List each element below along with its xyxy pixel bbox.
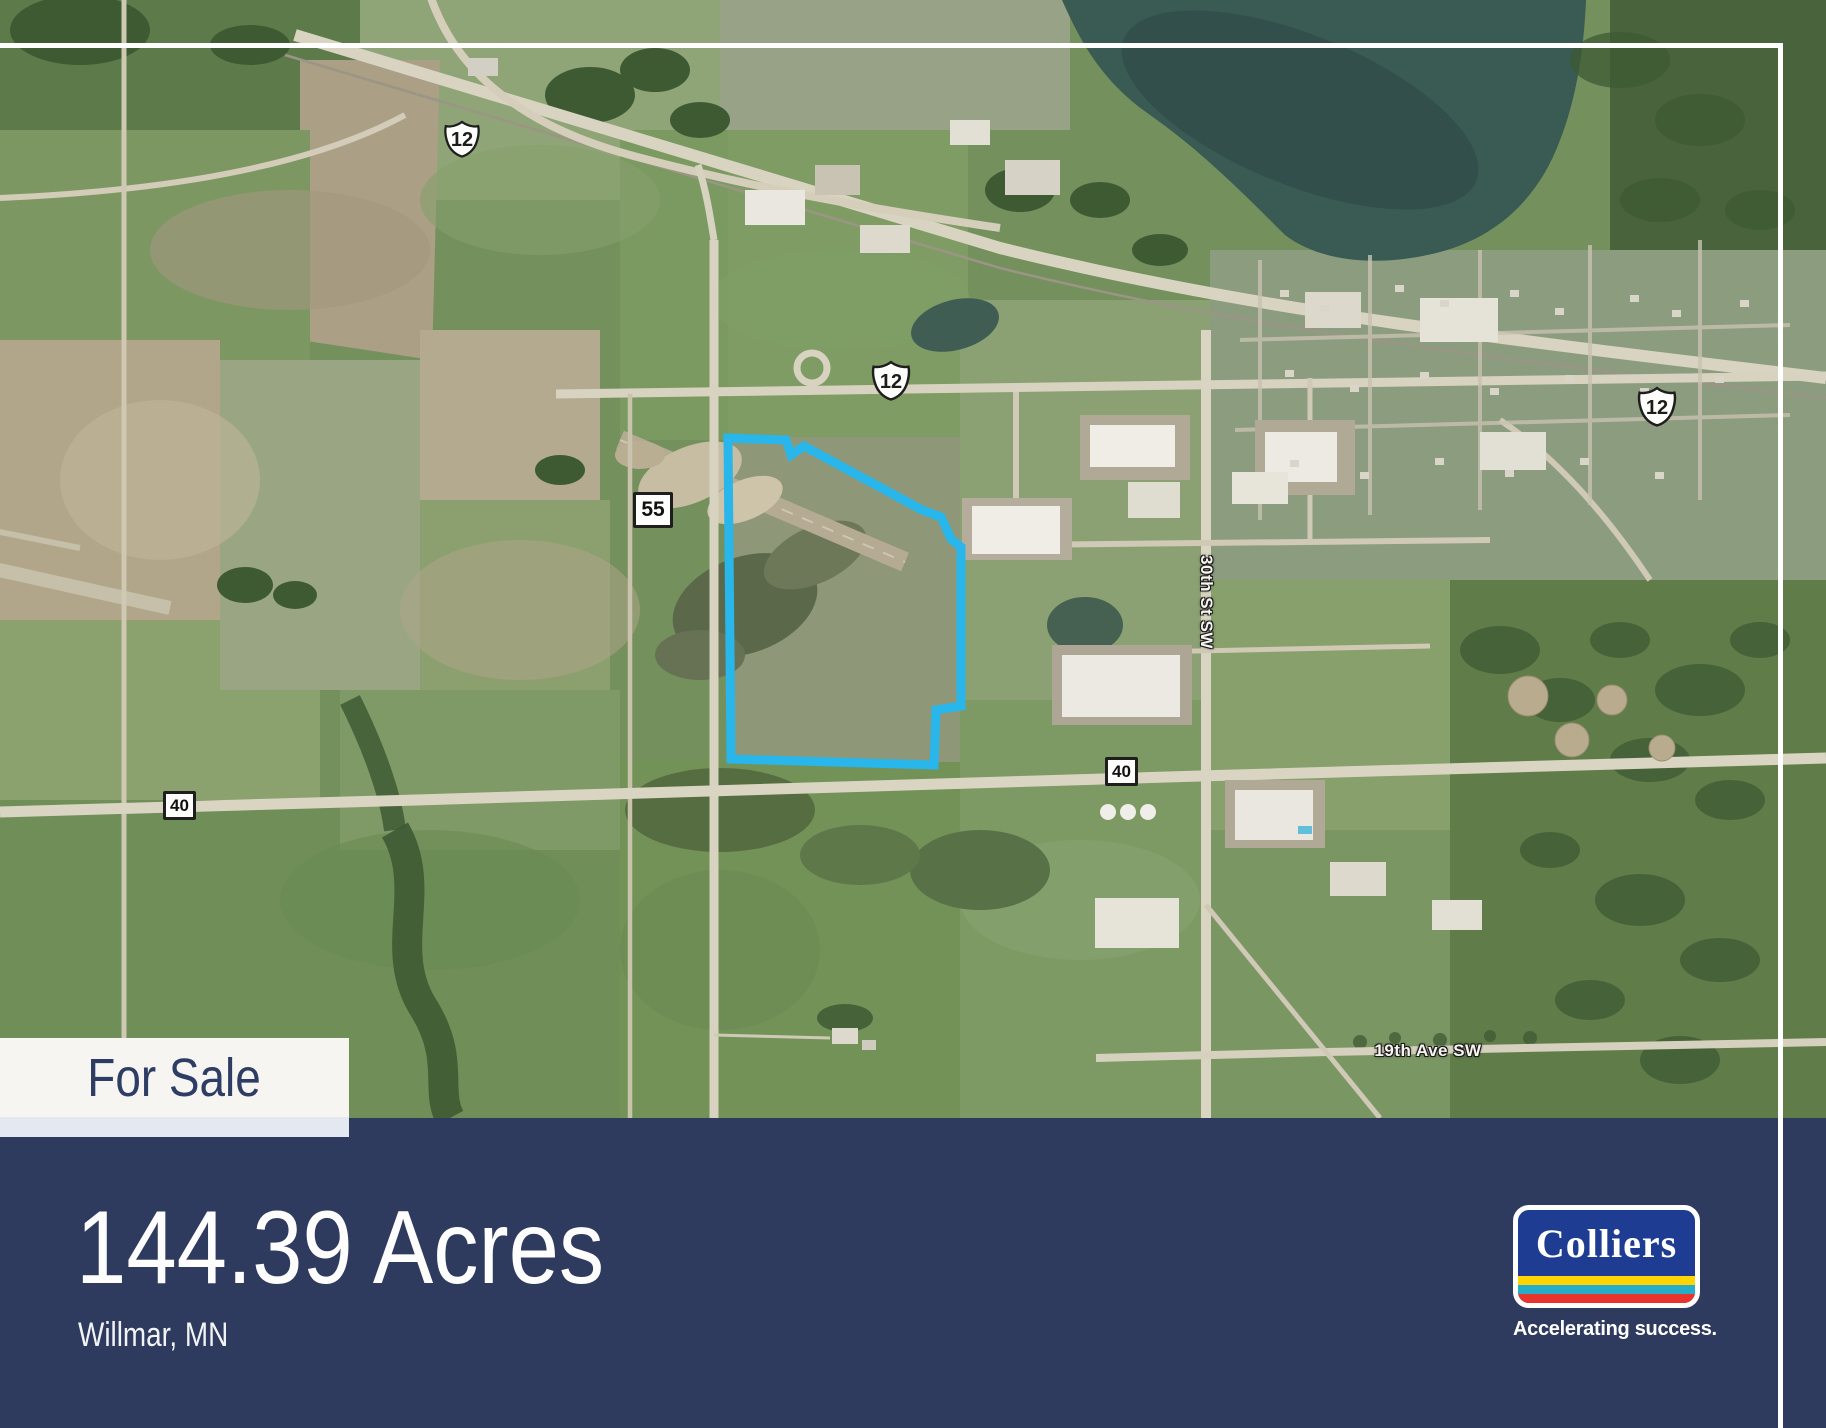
map-border-top [0, 43, 1783, 48]
route-shield-us12-central: 12 [869, 360, 913, 401]
route-shield-55: 55 [633, 492, 673, 528]
logo-stripe-red [1518, 1294, 1695, 1303]
location-subtitle: Willmar, MN [78, 1316, 228, 1355]
route-number: 40 [170, 796, 189, 816]
bottom-banner: 144.39 Acres Willmar, MN Colliers Accele… [0, 1118, 1826, 1428]
colliers-wordmark: Colliers [1518, 1210, 1695, 1276]
acreage-title: 144.39 Acres [76, 1196, 604, 1300]
route-shield-40-west: 40 [163, 791, 196, 820]
route-number: 12 [451, 128, 473, 150]
logo-stripe-teal [1518, 1285, 1695, 1294]
route-shield-us12-northwest: 12 [442, 120, 482, 158]
colliers-logo: Colliers [1513, 1205, 1700, 1308]
route-number: 55 [641, 498, 664, 522]
route-number: 12 [880, 370, 902, 392]
route-number: 40 [1112, 762, 1131, 782]
colliers-tagline: Accelerating success. [1513, 1318, 1700, 1341]
route-number: 12 [1646, 396, 1668, 418]
colliers-logo-stripes [1518, 1276, 1695, 1303]
street-label-19th-ave-sw: 19th Ave SW [1374, 1041, 1481, 1061]
flyer-page: 12 12 12 55 40 40 30th St SW 19th Ave SW… [0, 0, 1826, 1428]
accent-stripe [0, 1117, 349, 1137]
satellite-map-art [0, 0, 1826, 1118]
satellite-map: 12 12 12 55 40 40 30th St SW 19th Ave SW [0, 0, 1826, 1118]
map-border-right [1778, 43, 1783, 1428]
logo-stripe-yellow [1518, 1276, 1695, 1285]
route-shield-40-east: 40 [1105, 757, 1138, 786]
for-sale-box: For Sale [0, 1038, 349, 1117]
for-sale-label: For Sale [88, 1047, 261, 1109]
route-shield-us12-east: 12 [1635, 386, 1679, 427]
street-label-30th-st-sw: 30th St SW [1196, 555, 1216, 649]
